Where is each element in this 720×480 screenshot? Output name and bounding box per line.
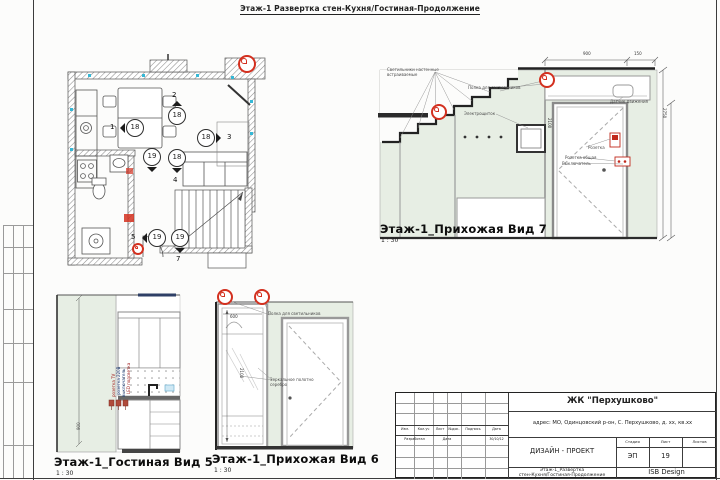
wall-lamp-icon xyxy=(539,72,555,88)
view-direction-arrow xyxy=(137,233,147,243)
view-number-label: 2 xyxy=(172,92,176,99)
dimension-label: 150 xyxy=(634,52,642,56)
tb-developer-label: Разработал xyxy=(396,435,433,445)
dimension-label: 600 xyxy=(230,315,238,319)
dimension-label: 900 xyxy=(583,52,591,56)
view-number-label: 1 xyxy=(110,124,114,131)
view-marker: 19 xyxy=(171,229,189,247)
tb-col-izm: Изм. xyxy=(396,425,414,435)
annotation-label: серебро xyxy=(270,383,287,387)
view-number-label: 7 xyxy=(176,256,180,263)
tb-sheet-label: Лист xyxy=(649,437,682,447)
annotation-label: Розетка xyxy=(588,146,605,150)
annotation-label: Полка для светильников xyxy=(468,86,520,90)
tb-col-podpis: Подпись xyxy=(461,425,485,435)
tb-date-value: 30/10/12 xyxy=(485,435,508,445)
tb-company: ISB Design xyxy=(616,467,717,479)
annotation-label: 900 xyxy=(77,422,81,430)
annotation-label: Электрощиток xyxy=(464,112,495,116)
wall-lamp-icon xyxy=(254,289,270,305)
title-block: Изм. Кол.уч Лист №док. Подпись Дата Разр… xyxy=(395,392,716,478)
annotation-label: Розетка общая xyxy=(565,156,596,160)
view-number-label: 5 xyxy=(131,234,135,241)
wall-lamp-icon xyxy=(431,104,447,120)
tb-doc-type: ДИЗАЙН - ПРОЕКТ xyxy=(508,437,616,467)
wall-lamp-icon xyxy=(217,289,233,305)
view-direction-arrow xyxy=(147,167,157,177)
wall-lamp-icon xyxy=(238,55,256,73)
tb-project-name: ЖК "Перхушково" xyxy=(508,393,717,411)
tb-sheets-label: Листов xyxy=(682,437,717,447)
tb-sheet-number: 19 xyxy=(649,447,682,467)
view-marker: 18 xyxy=(197,129,215,147)
tb-col-list: Лист xyxy=(433,425,447,435)
tb-date-label: Дата xyxy=(433,435,461,445)
tb-address: адрес: МО, Одинцовский р-он, С. Перхушко… xyxy=(508,411,717,437)
tb-col-koluch: Кол.уч xyxy=(414,425,433,435)
view-marker: 19 xyxy=(143,148,161,166)
tb-col-ndok: №док. xyxy=(447,425,461,435)
tb-sheet-title-line2: стен-Кухня/Гостиная-Продолжение xyxy=(519,473,606,478)
tb-sheet-title: Этаж-1_Развертка стен-Кухня/Гостиная-Про… xyxy=(508,467,616,479)
drawing-sheet: Этаж-1 Развертка стен-Кухня/Гостиная-Про… xyxy=(0,0,720,480)
tb-sheets-total xyxy=(682,447,717,467)
view-marker: 18 xyxy=(168,149,186,167)
annotation-label: Выключатель xyxy=(562,162,591,166)
view-number-label: 3 xyxy=(227,134,231,141)
wall-lamp-icon xyxy=(132,243,144,255)
annotation-label: Датчик движения xyxy=(610,100,648,104)
view-marker: 18 xyxy=(126,119,144,137)
view-direction-arrow xyxy=(115,123,125,133)
annotation-label: LED подсветка xyxy=(127,363,131,394)
tb-col-data: Дата xyxy=(485,425,508,435)
annotation-label: Полка для светильников xyxy=(268,312,320,316)
annotation-label: встраиваемые xyxy=(387,73,417,77)
tb-stage-label: Стадия xyxy=(616,437,649,447)
view-marker: 18 xyxy=(168,107,186,125)
view-marker: 19 xyxy=(148,229,166,247)
view-number-label: 4 xyxy=(173,177,177,184)
dimension-label: 2100 xyxy=(547,118,551,128)
view-direction-arrow xyxy=(216,133,226,143)
dimension-label: 2750 xyxy=(662,108,666,118)
dimension-label: 2100 xyxy=(239,368,243,378)
tb-stage-value: ЭП xyxy=(616,447,649,467)
